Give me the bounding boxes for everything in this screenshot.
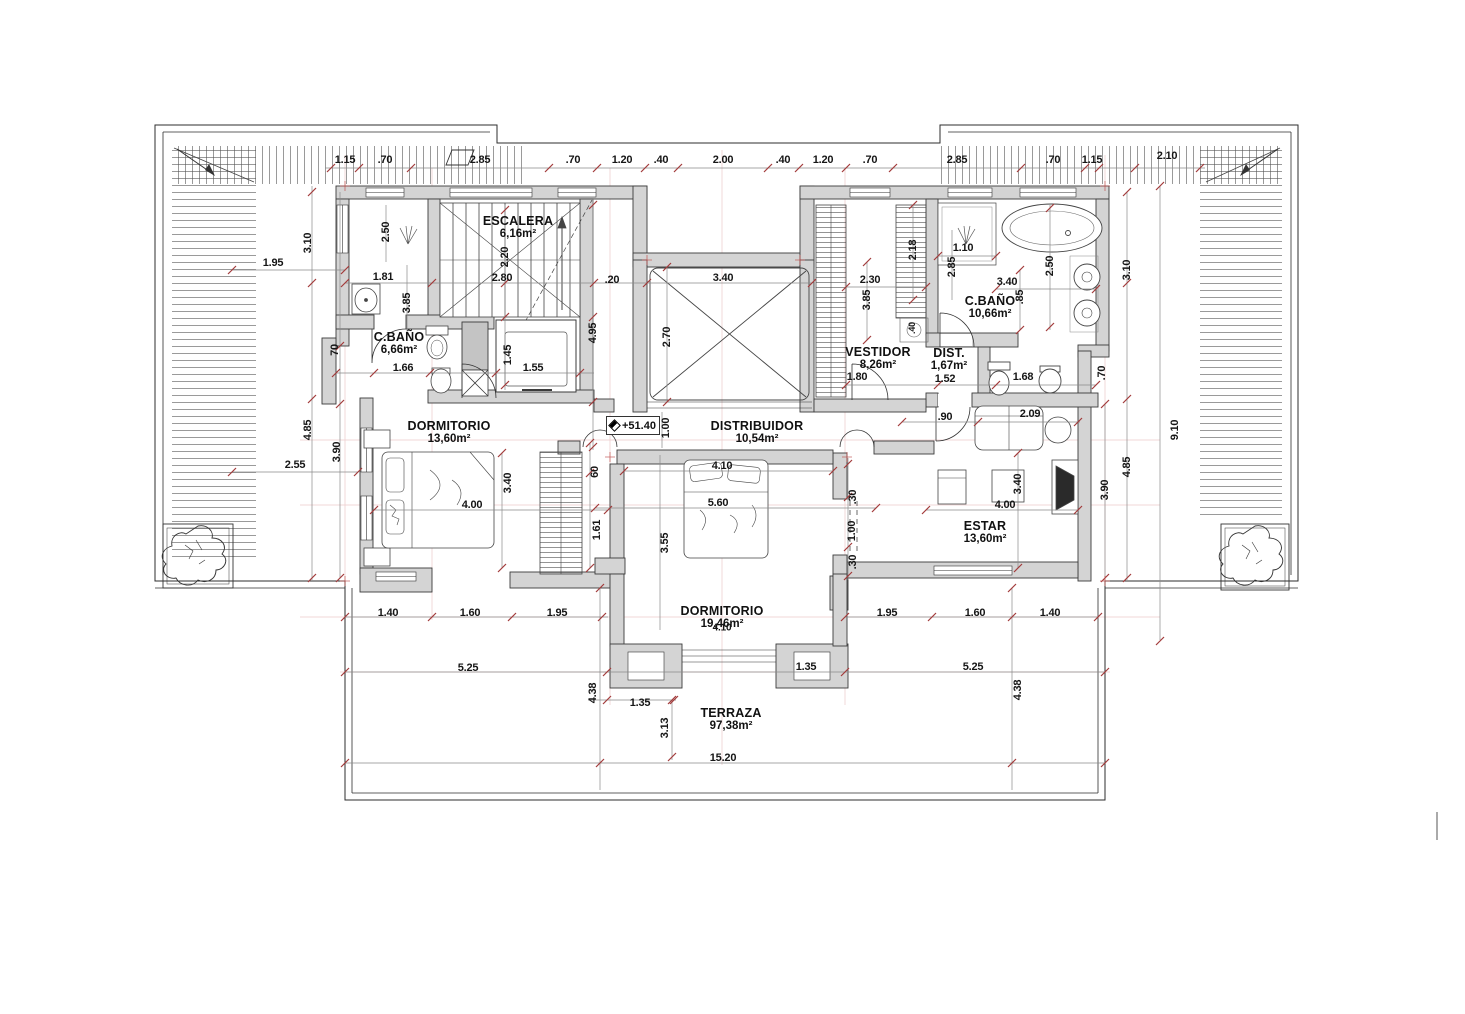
wall-opening-dashed — [850, 501, 857, 553]
armchair — [1045, 417, 1071, 443]
staircase — [440, 200, 592, 322]
sink — [1074, 264, 1100, 290]
bed-center — [684, 460, 768, 558]
bidet — [431, 369, 451, 393]
toilet — [427, 335, 447, 359]
bed-left — [364, 430, 494, 566]
shaft — [462, 370, 488, 396]
coffee-table — [992, 470, 1024, 502]
toilet-tank — [426, 326, 448, 335]
toilet-tank — [988, 362, 1010, 370]
bidet — [1039, 369, 1061, 393]
sink — [1074, 300, 1100, 326]
shower-left — [400, 226, 417, 244]
floor-plan: +51.40 ESCALERA6,16m²C.BAÑO6,66m²DORMITO… — [0, 0, 1465, 1014]
patio-void — [650, 268, 809, 400]
floor-plan-drawing — [0, 0, 1465, 1014]
toilet — [989, 371, 1009, 395]
tree-right — [1219, 524, 1289, 590]
side-table — [938, 470, 966, 504]
